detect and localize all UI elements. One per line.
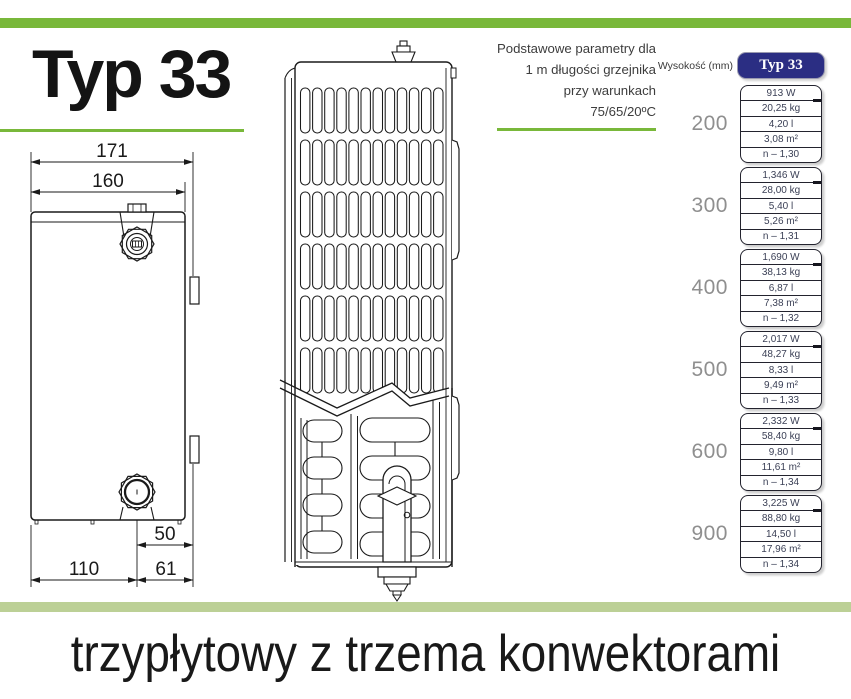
spec-row-area: 3,08 m² xyxy=(741,132,821,147)
spec-table: Wysokość (mm) Typ 33 200 913 W 20,25 kg … xyxy=(657,52,825,578)
spec-row-exponent: n – 1,31 xyxy=(741,230,821,244)
page-title: Typ 33 xyxy=(32,40,230,108)
spec-group: 400 1,690 W 38,13 kg 6,87 l 7,38 m² n – … xyxy=(657,250,825,326)
spec-row-volume: 9,80 l xyxy=(741,445,821,460)
spec-row-weight: 48,27 kg xyxy=(741,347,821,362)
title-underline xyxy=(0,129,244,132)
spec-row-area: 5,26 m² xyxy=(741,214,821,229)
spec-row-volume: 14,50 l xyxy=(741,527,821,542)
type-header-badge: Typ 33 xyxy=(737,52,825,79)
spec-group: 500 2,017 W 48,27 kg 8,33 l 9,49 m² n – … xyxy=(657,332,825,408)
spec-group: 200 913 W 20,25 kg 4,20 l 3,08 m² n – 1,… xyxy=(657,86,825,162)
params-note: Podstawowe parametry dla 1 m długości gr… xyxy=(470,38,656,122)
spec-row-power: 3,225 W xyxy=(741,496,821,511)
spec-row-power: 2,017 W xyxy=(741,332,821,347)
spec-row-exponent: n – 1,34 xyxy=(741,476,821,490)
spec-row-area: 9,49 m² xyxy=(741,378,821,393)
product-sheet: Typ 33 xyxy=(0,0,851,699)
spec-row-power: 1,690 W xyxy=(741,250,821,265)
dim-total-width: 171 xyxy=(96,141,128,162)
spec-row-exponent: n – 1,30 xyxy=(741,148,821,162)
dim-body-width: 160 xyxy=(92,171,124,192)
spec-box: 1,690 W 38,13 kg 6,87 l 7,38 m² n – 1,32 xyxy=(740,249,822,327)
spec-row-power: 913 W xyxy=(741,86,821,101)
spec-group: 900 3,225 W 88,80 kg 14,50 l 17,96 m² n … xyxy=(657,496,825,572)
spec-box: 3,225 W 88,80 kg 14,50 l 17,96 m² n – 1,… xyxy=(740,495,822,573)
spec-groups: 200 913 W 20,25 kg 4,20 l 3,08 m² n – 1,… xyxy=(657,86,825,572)
top-accent-bar xyxy=(0,18,851,28)
height-label: 600 xyxy=(657,440,740,464)
height-label: 500 xyxy=(657,358,740,382)
height-label: 200 xyxy=(657,112,740,136)
spec-row-volume: 6,87 l xyxy=(741,281,821,296)
params-note-line: 1 m długości grzejnika xyxy=(470,59,656,80)
side-view-drawing: 171 160 50 110 61 xyxy=(18,140,228,610)
spec-row-weight: 28,00 kg xyxy=(741,183,821,198)
spec-row-power: 2,332 W xyxy=(741,414,821,429)
spec-row-exponent: n – 1,34 xyxy=(741,558,821,572)
spec-row-volume: 4,20 l xyxy=(741,117,821,132)
spec-box: 1,346 W 28,00 kg 5,40 l 5,26 m² n – 1,31 xyxy=(740,167,822,245)
dim-left-offset: 110 xyxy=(69,559,99,580)
footer-accent-bar xyxy=(0,602,851,612)
spec-group: 300 1,346 W 28,00 kg 5,40 l 5,26 m² n – … xyxy=(657,168,825,244)
footer-headline: trzypłytowy z trzema konwektorami xyxy=(51,623,800,685)
spec-row-weight: 58,40 kg xyxy=(741,429,821,444)
spec-group: 600 2,332 W 58,40 kg 9,80 l 11,61 m² n –… xyxy=(657,414,825,490)
params-note-line: Podstawowe parametry dla xyxy=(470,38,656,59)
spec-row-volume: 8,33 l xyxy=(741,363,821,378)
spec-box: 2,017 W 48,27 kg 8,33 l 9,49 m² n – 1,33 xyxy=(740,331,822,409)
spec-row-area: 7,38 m² xyxy=(741,296,821,311)
spec-row-power: 1,346 W xyxy=(741,168,821,183)
params-underline xyxy=(497,128,656,131)
spec-row-weight: 88,80 kg xyxy=(741,511,821,526)
params-note-line: przy warunkach xyxy=(470,80,656,101)
height-label: 900 xyxy=(657,522,740,546)
height-label: 400 xyxy=(657,276,740,300)
spec-row-exponent: n – 1,32 xyxy=(741,312,821,326)
dim-right-offset: 61 xyxy=(155,559,176,580)
height-column-header: Wysokość (mm) xyxy=(657,60,737,72)
spec-row-exponent: n – 1,33 xyxy=(741,394,821,408)
params-note-line: 75/65/20ºC xyxy=(470,101,656,122)
spec-row-weight: 38,13 kg xyxy=(741,265,821,280)
spec-box: 2,332 W 58,40 kg 9,80 l 11,61 m² n – 1,3… xyxy=(740,413,822,491)
spec-table-header: Wysokość (mm) Typ 33 xyxy=(657,52,825,79)
spec-row-area: 11,61 m² xyxy=(741,460,821,475)
spec-row-weight: 20,25 kg xyxy=(741,101,821,116)
spec-box: 913 W 20,25 kg 4,20 l 3,08 m² n – 1,30 xyxy=(740,85,822,163)
front-view-drawing xyxy=(272,28,472,608)
spec-row-volume: 5,40 l xyxy=(741,199,821,214)
dim-valve-offset: 50 xyxy=(154,524,175,545)
height-label: 300 xyxy=(657,194,740,218)
spec-row-area: 17,96 m² xyxy=(741,542,821,557)
